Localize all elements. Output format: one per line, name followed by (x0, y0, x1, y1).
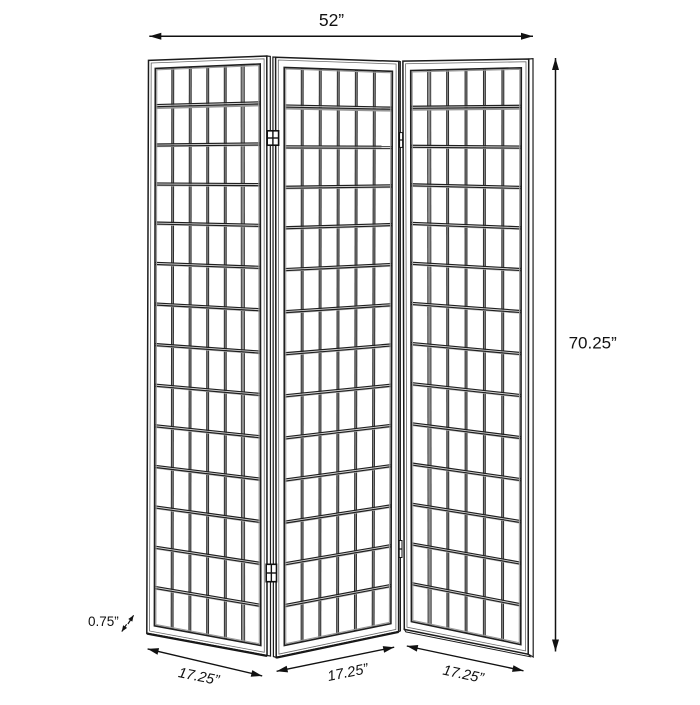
svg-text:0.75”: 0.75” (88, 614, 119, 629)
svg-text:52”: 52” (319, 10, 344, 30)
svg-text:70.25”: 70.25” (569, 333, 618, 352)
